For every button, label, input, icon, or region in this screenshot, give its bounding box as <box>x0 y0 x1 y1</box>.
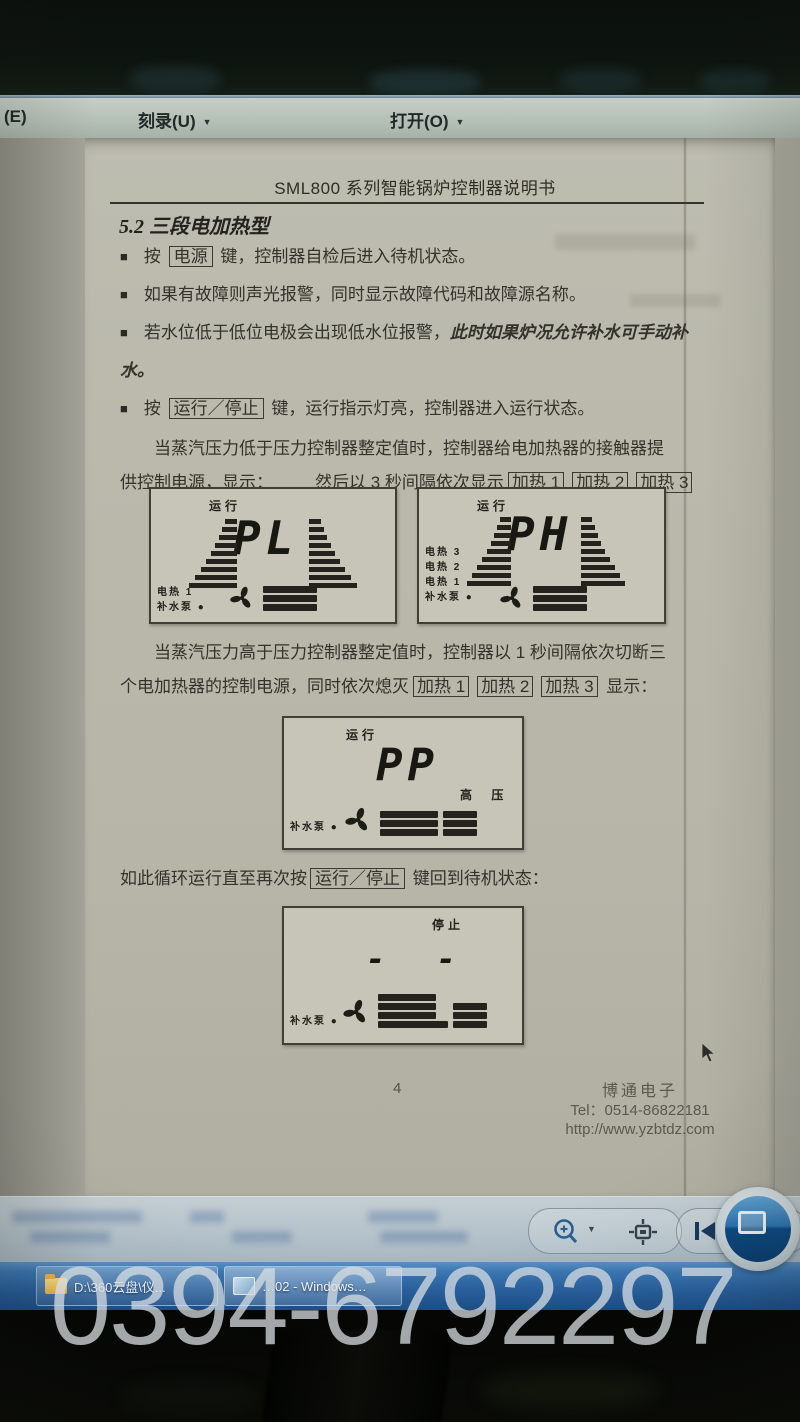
bullet-line-fault: ■如果有故障则声光报警，同时显示故障代码和故障源名称。 <box>120 276 720 314</box>
viewer-menu-bar: (E) 刻录(U)▼ 打开(O)▼ <box>0 98 800 139</box>
pump-fan-icon <box>344 806 372 836</box>
toolbar-blur-text <box>12 1211 142 1223</box>
run-stop-key-label: 运行／停止 <box>310 868 405 889</box>
lcd-value-ph: PH <box>507 507 572 561</box>
water-level-bars-right <box>309 519 357 591</box>
menu-item-open[interactable]: 打开(O)▼ <box>390 107 464 132</box>
lcd-bottom-icons <box>342 994 487 1028</box>
slideshow-play-icon <box>738 1211 766 1234</box>
bezel-reflection <box>130 66 220 92</box>
bullet4-post: 键，运行指示灯亮，控制器进入运行状态。 <box>267 399 595 418</box>
document-header-title: SML800 系列智能锅炉控制器说明书 <box>85 174 745 199</box>
high-pressure-label: 高 压 <box>460 786 511 803</box>
toolbar-blur-text <box>368 1211 438 1223</box>
para2-line1: 当蒸汽压力高于压力控制器整定值时，控制器以 1 秒间隔依次切断三 <box>120 636 724 670</box>
header-rule <box>110 202 704 204</box>
lcd-bottom-icons <box>344 806 477 836</box>
water-level-bars-left <box>189 519 237 591</box>
magnifier-plus-icon[interactable] <box>551 1217 581 1247</box>
heat2-indicator-label: 加热 2 <box>477 676 533 697</box>
pump-indicator-dot: ● <box>198 602 206 613</box>
lcd-display-pp: 运行 PP 高 压 补水泵 ● <box>282 716 524 850</box>
para2-line2: 个电加热器的控制电源，同时依次熄灭加热 1加热 2加热 3 显示： <box>120 670 724 704</box>
pump-fan-icon <box>229 585 255 611</box>
bullet2-text: 如果有故障则声光报警，同时显示故障代码和故障源名称。 <box>144 285 586 304</box>
bullet-line-waterlevel: ■若水位低于低位电极会出现低水位报警，此时如果炉况允许补水可手动补水。 <box>120 314 720 390</box>
menu-item-burn[interactable]: 刻录(U)▼ <box>138 107 212 132</box>
bezel-reflection <box>700 70 770 92</box>
para1-line1: 当蒸汽压力低于压力控制器整定值时，控制器给电加热器的接触器提 <box>120 432 720 466</box>
document-viewer: SML800 系列智能锅炉控制器说明书 5.2 三段电加热型 ■按 电源 键，控… <box>0 138 800 1196</box>
section-title: 5.2 三段电加热型 <box>119 210 269 239</box>
mouse-cursor <box>701 1042 717 1064</box>
heater3-label: 电热 3 <box>425 545 474 560</box>
bullet-icon: ■ <box>120 390 128 428</box>
feed-pump-label: 补水泵 <box>157 602 193 613</box>
actual-size-icon[interactable] <box>629 1218 657 1246</box>
bullet-icon: ■ <box>120 314 128 352</box>
heater2-label: 电热 2 <box>425 560 474 575</box>
run-stop-key-label: 运行／停止 <box>169 398 264 419</box>
feed-pump-label: 补水泵 <box>425 592 461 603</box>
water-tank-stripes <box>533 586 587 611</box>
bezel-reflection <box>560 68 640 92</box>
bullet-icon: ■ <box>120 238 128 276</box>
toolbar-blur-text <box>30 1231 110 1243</box>
company-name: 博通电子 <box>515 1082 765 1101</box>
company-url: http://www.yzbtdz.com <box>515 1120 765 1139</box>
toolbar-blur-text <box>380 1231 468 1243</box>
power-key-label: 电源 <box>169 246 213 267</box>
page-number: 4 <box>393 1080 401 1097</box>
desk-reflection <box>480 1370 660 1410</box>
watermark-phone-number: 0394-6792297 <box>50 1252 736 1362</box>
lcd-display-standby: 停止 - - 补水泵 ● <box>282 906 524 1045</box>
heater1-label: 电热 1 <box>425 575 474 590</box>
menu-item-open-label: 打开(O) <box>390 112 449 131</box>
water-tank-stripes <box>378 994 487 1028</box>
lcd-run-label: 运行 <box>346 726 378 743</box>
feed-pump-label: 补水泵 <box>290 822 326 833</box>
zoom-dropdown-caret[interactable]: ▼ <box>587 1224 596 1234</box>
bezel-reflection <box>370 70 480 94</box>
lcd-bottom-icons <box>229 585 317 611</box>
water-tank-stripes <box>380 811 477 836</box>
pump-indicator-dot: ● <box>331 1016 339 1027</box>
monitor-photo: (E) 刻录(U)▼ 打开(O)▼ SML800 系列智能锅炉控制器说明书 5.… <box>0 0 800 1422</box>
toolbar-blur-text <box>232 1231 292 1243</box>
bullet-line-power: ■按 电源 键，控制器自检后进入待机状态。 <box>120 238 720 276</box>
lcd-left-labels: 电热 1 补水泵 ● <box>157 585 206 615</box>
lcd-display-ph: 运行 PH <box>417 487 666 624</box>
paragraph-high-pressure: 当蒸汽压力高于压力控制器整定值时，控制器以 1 秒间隔依次切断三 个电加热器的控… <box>120 636 724 704</box>
pump-fan-icon <box>499 585 525 611</box>
chevron-down-icon: ▼ <box>203 117 212 127</box>
lcd-value-pl: PL <box>233 511 298 565</box>
lcd-left-labels: 补水泵 ● <box>290 1014 339 1029</box>
lcd-run-label: 运行 <box>477 497 509 514</box>
bullet4-pre: 按 <box>144 399 166 418</box>
company-tel: Tel：0514-86822181 <box>515 1101 765 1120</box>
bullet-line-runstop: ■按 运行／停止 键，运行指示灯亮，控制器进入运行状态。 <box>120 390 720 428</box>
bullet3-pre: 若水位低于低位电极会出现低水位报警， <box>144 323 450 342</box>
lcd-value-dashes: - - <box>366 940 472 978</box>
para2-line2-post: 显示： <box>606 677 657 696</box>
heat1-indicator-label: 加热 1 <box>413 676 469 697</box>
chevron-down-icon: ▼ <box>456 117 465 127</box>
document-body-text: ■按 电源 键，控制器自检后进入待机状态。 ■如果有故障则声光报警，同时显示故障… <box>120 238 720 500</box>
toolbar-blur-text <box>190 1211 224 1223</box>
cycle-post: 键回到待机状态： <box>408 869 549 888</box>
heat3-indicator-label: 加热 3 <box>541 676 597 697</box>
lcd-left-labels: 电热 3 电热 2 电热 1 补水泵 ● <box>425 545 474 605</box>
desk-reflection <box>120 1380 260 1414</box>
pump-indicator-dot: ● <box>466 592 474 603</box>
lcd-value-pp: PP <box>376 740 439 791</box>
menu-item-email[interactable]: (E) <box>4 107 27 127</box>
company-footer: 博通电子 Tel：0514-86822181 http://www.yzbtdz… <box>515 1082 765 1139</box>
lcd-stop-label: 停止 <box>432 916 464 933</box>
water-tank-stripes <box>263 586 317 611</box>
lcd-bottom-icons <box>499 585 587 611</box>
lcd-display-pl: 运行 PL <box>149 487 397 624</box>
water-level-bars-right <box>581 517 625 589</box>
pump-fan-icon <box>342 998 370 1028</box>
menu-item-burn-label: 刻录(U) <box>138 112 196 131</box>
heater1-label: 电热 1 <box>157 585 206 600</box>
para2-line2-pre: 个电加热器的控制电源，同时依次熄灭 <box>120 677 409 696</box>
pump-indicator-dot: ● <box>331 822 339 833</box>
bullet1-pre: 按 <box>144 247 166 266</box>
manual-page: SML800 系列智能锅炉控制器说明书 5.2 三段电加热型 ■按 电源 键，控… <box>85 138 775 1196</box>
bullet1-post: 键，控制器自检后进入待机状态。 <box>216 247 476 266</box>
cycle-pre: 如此循环运行直至再次按 <box>120 869 307 888</box>
bullet-icon: ■ <box>120 276 128 314</box>
lcd-left-labels: 补水泵 ● <box>290 820 339 835</box>
page-crease <box>684 138 686 1196</box>
feed-pump-label: 补水泵 <box>290 1016 326 1027</box>
cycle-line: 如此循环运行直至再次按运行／停止 键回到待机状态： <box>120 862 720 896</box>
monitor-bezel-top <box>0 0 800 98</box>
